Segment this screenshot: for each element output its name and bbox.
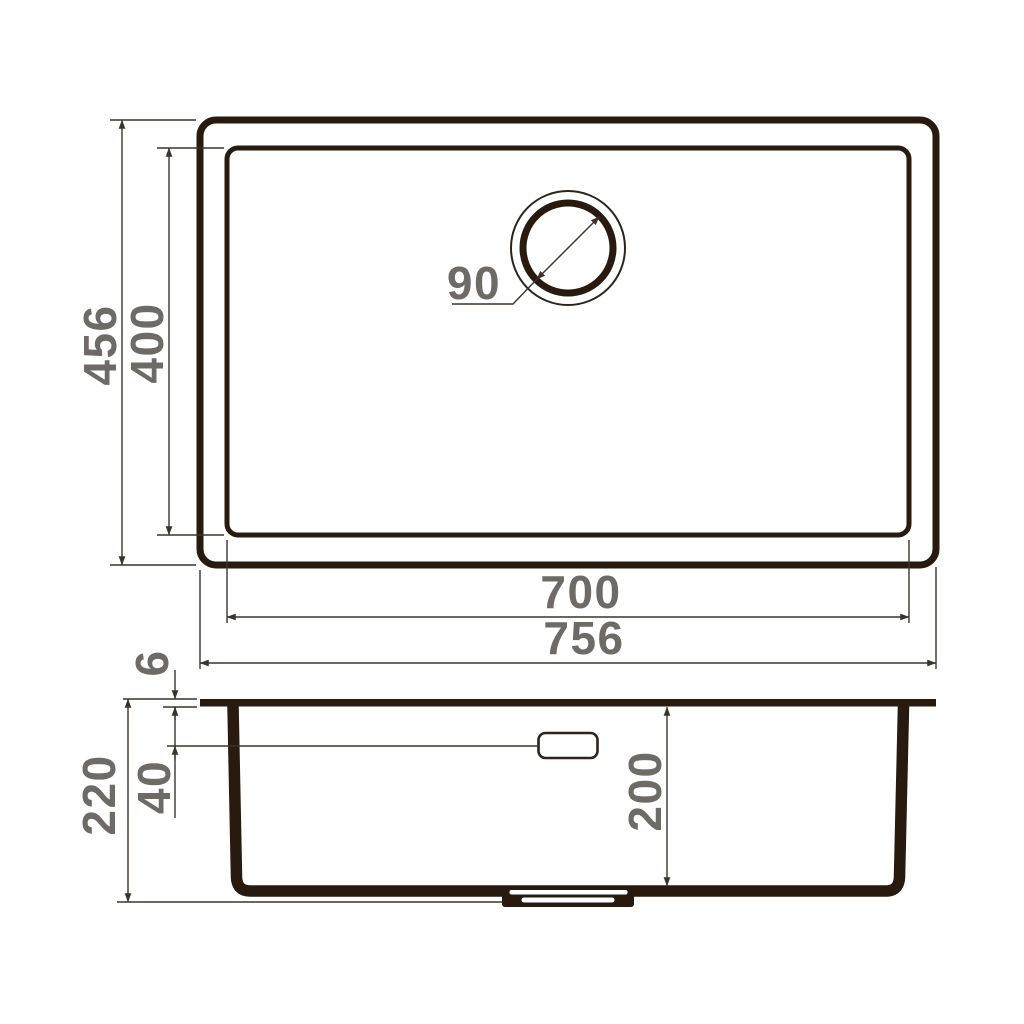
drain-diameter-label: 90	[447, 257, 501, 309]
side-drain-fitting	[502, 886, 634, 907]
bowl-depth-label: 200	[619, 750, 671, 831]
total-depth-label: 220	[73, 754, 125, 835]
top-view: 90	[200, 120, 936, 565]
outer-height-label: 456	[74, 304, 126, 385]
inner-width-label: 700	[540, 566, 621, 618]
sink-dimension-diagram: 90 456 400 700 756	[0, 0, 1024, 1024]
inner-height-label: 400	[121, 302, 173, 383]
sink-outer-rim-outline	[200, 120, 936, 565]
side-view	[200, 699, 936, 907]
overflow-level-label: 40	[128, 760, 180, 814]
side-overflow-opening	[539, 733, 598, 758]
diagram-canvas: 90 456 400 700 756	[0, 0, 1024, 1024]
rim-thickness-label: 6	[126, 649, 178, 676]
side-rim-flange	[200, 699, 936, 707]
outer-width-label: 756	[543, 612, 624, 664]
side-drain-slot-upper	[510, 890, 628, 895]
side-view-dimensions: 6 40 220 200	[73, 649, 671, 902]
side-drain-slot-lower	[522, 898, 615, 903]
